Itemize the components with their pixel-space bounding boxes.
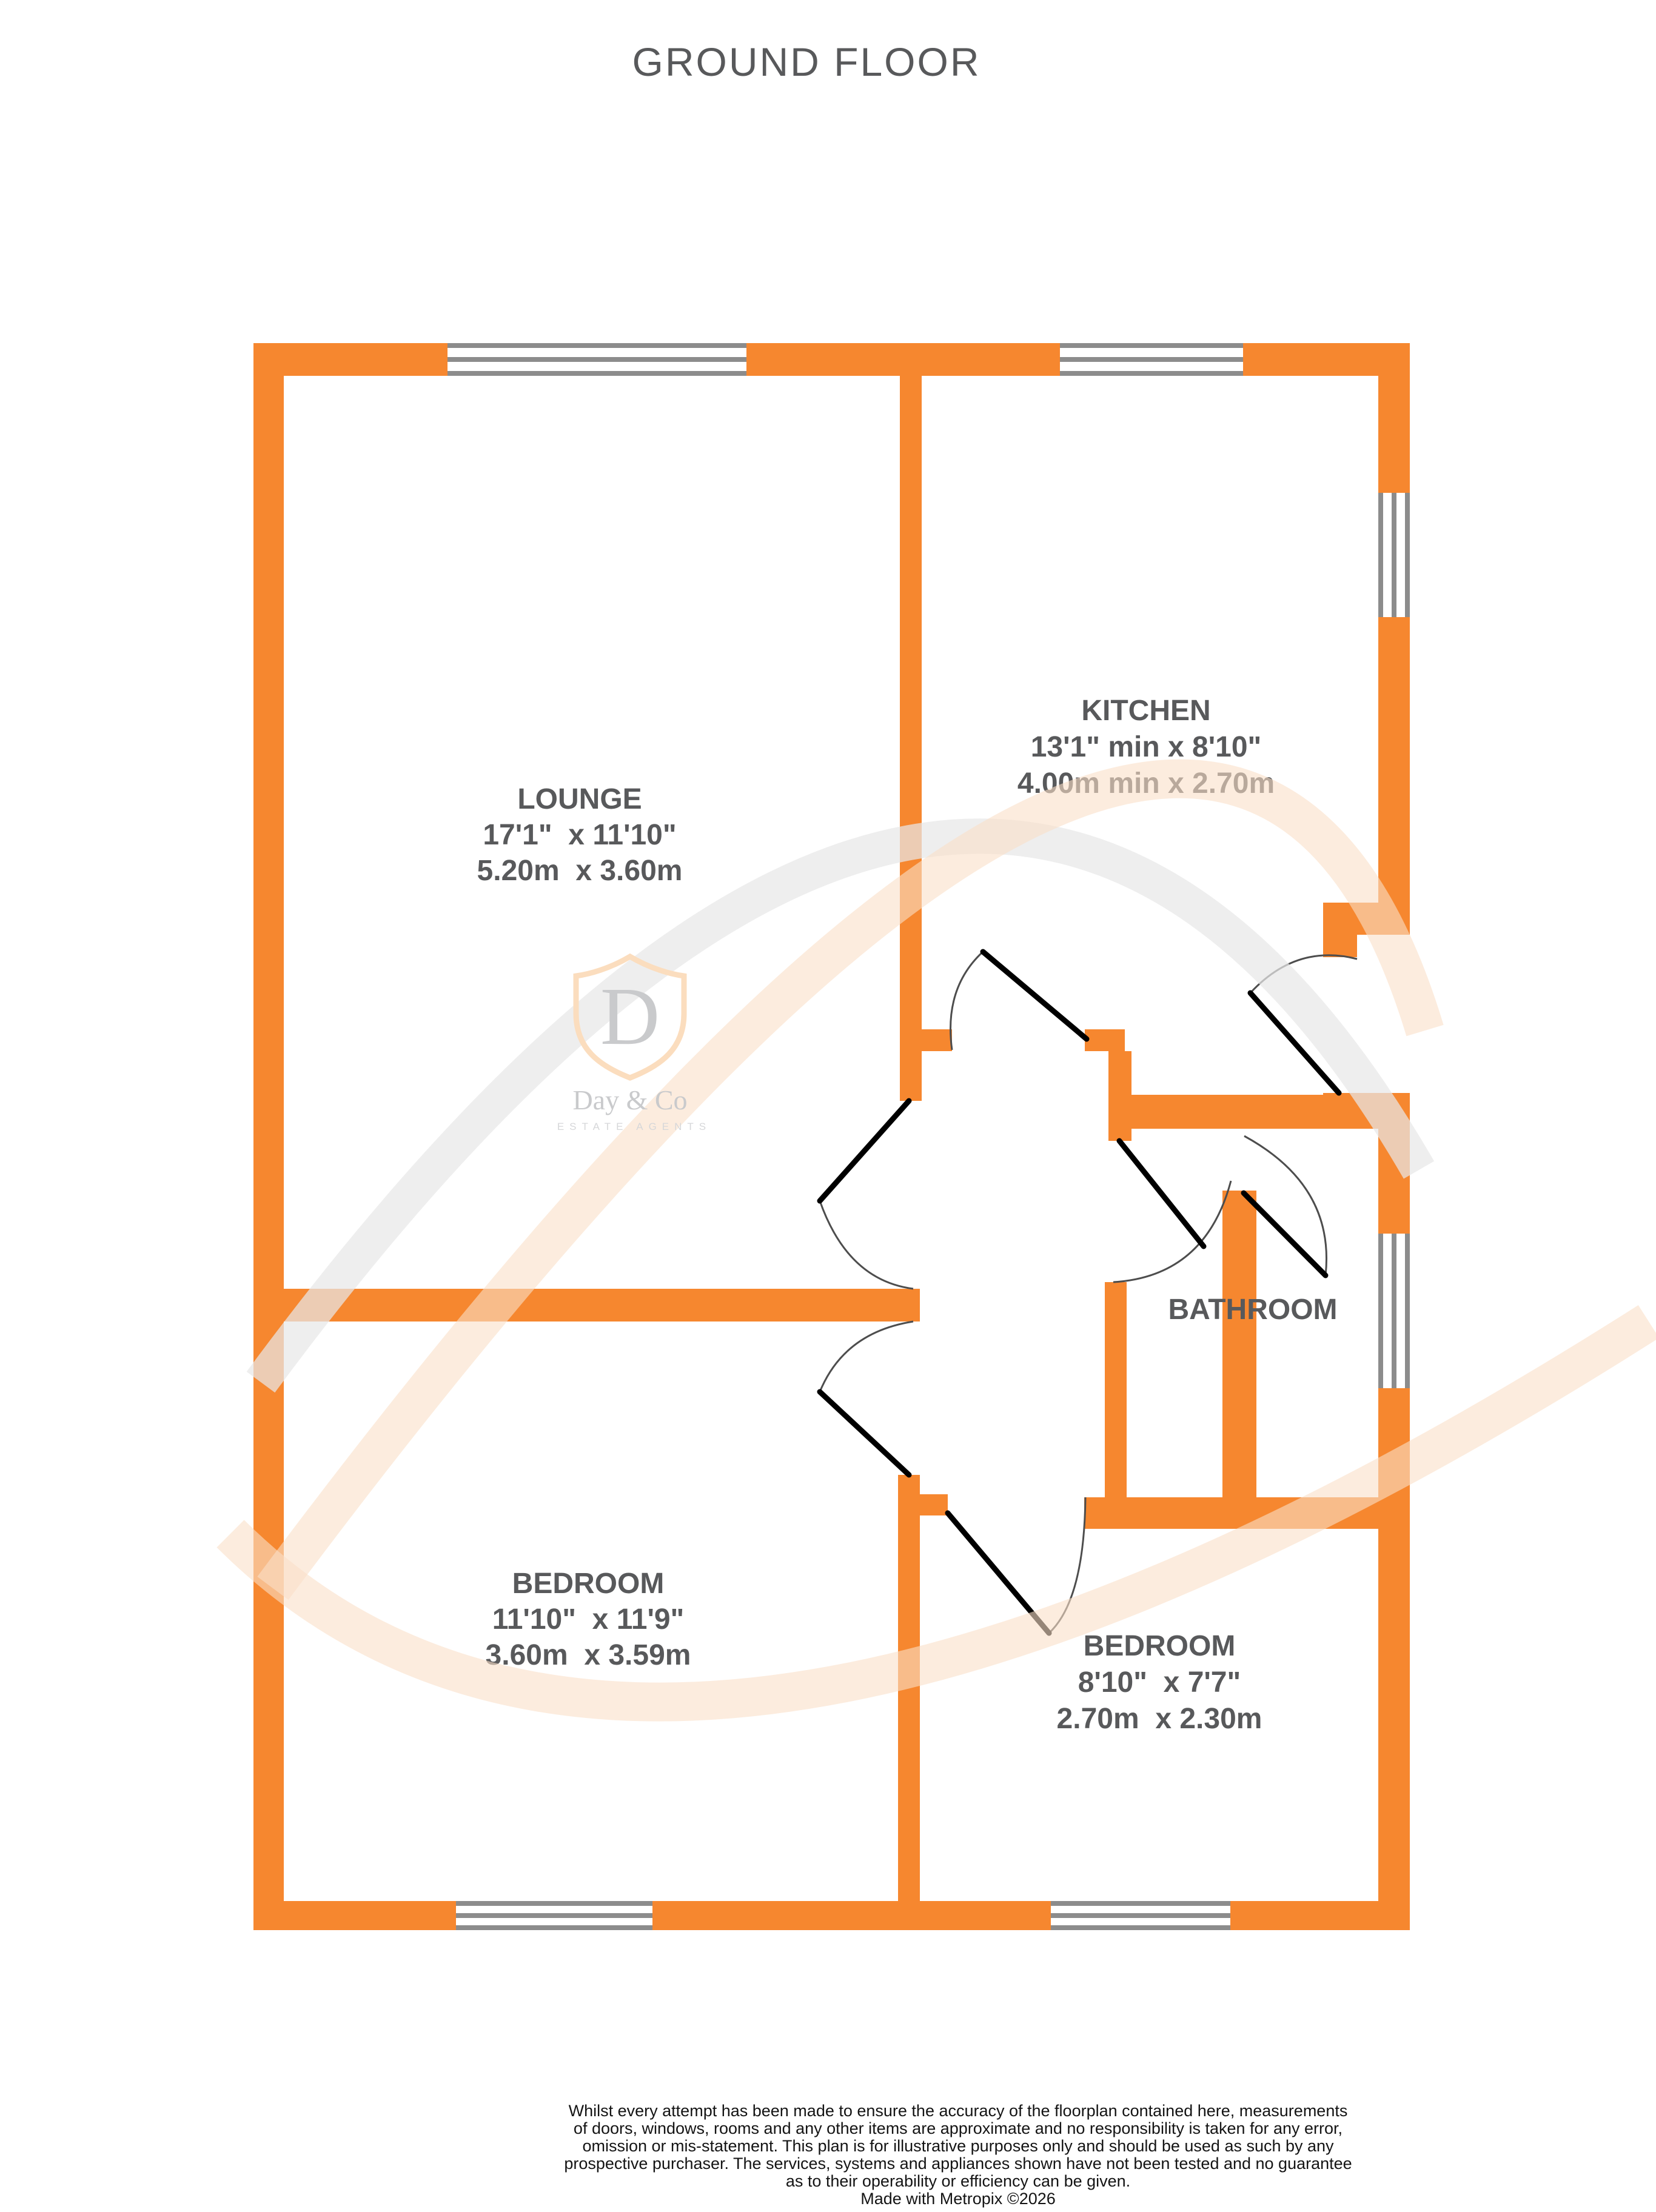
bedroom1-label: BEDROOM 11'10" x 11'9" 3.60m x 3.59m (486, 1568, 691, 1671)
kitchen-side-window (1378, 493, 1410, 617)
bedroom2-name: BEDROOM (1084, 1630, 1236, 1662)
floor-plan: LOUNGE 17'1" x 11'10" 5.20m x 3.60m KITC… (0, 0, 1656, 2212)
kitchen-door (951, 952, 1087, 1050)
lounge-label: LOUNGE 17'1" x 11'10" 5.20m x 3.60m (477, 783, 683, 887)
bedroom1-rear-window (456, 1901, 652, 1930)
disclaimer-line: omission or mis-statement. This plan is … (261, 2137, 1655, 2155)
bedroom2-metric: 2.70m x 2.30m (1057, 1703, 1262, 1735)
wall-kitchen-south-stub (922, 1029, 952, 1051)
bedroom1-metric: 3.60m x 3.59m (486, 1639, 691, 1671)
wall-lounge-bedroom1-divider (273, 1289, 920, 1322)
wall-bottom (253, 1901, 1410, 1930)
bedroom1-name: BEDROOM (512, 1568, 665, 1600)
bedroom2-imperial: 8'10" x 7'7" (1078, 1666, 1241, 1699)
watermark-name: Day & Co (572, 1084, 687, 1115)
bathroom-side-window (1378, 1234, 1410, 1388)
kitchen-front-window (1060, 343, 1243, 376)
lounge-imperial: 17'1" x 11'10" (483, 819, 676, 851)
lounge-front-window (448, 343, 746, 376)
disclaimer-credit: Made with Metropix ©2026 (261, 2190, 1655, 2208)
watermark: D Day & Co ESTATE AGENTS (230, 779, 1649, 1702)
kitchen-imperial: 13'1" min x 8'10" (1031, 731, 1262, 763)
disclaimer: Whilst every attempt has been made to en… (261, 2102, 1655, 2208)
disclaimer-line: prospective purchaser. The services, sys… (261, 2155, 1655, 2173)
wall-right-upper (1378, 343, 1410, 935)
bedroom2-label: BEDROOM 8'10" x 7'7" 2.70m x 2.30m (1057, 1630, 1262, 1735)
wall-bathroom-left (1222, 1191, 1256, 1497)
lounge-metric: 5.20m x 3.60m (477, 855, 683, 887)
wall-lounge-kitchen-divider (900, 376, 922, 1101)
lounge-door (820, 1101, 913, 1289)
watermark-tagline: ESTATE AGENTS (557, 1121, 711, 1132)
watermark-initial: D (600, 971, 660, 1062)
wall-bedroom2-door-arm (920, 1494, 948, 1515)
wall-kitchen-door-post (1085, 1029, 1125, 1051)
bathroom-outer-door (1113, 1141, 1231, 1282)
wall-left (253, 343, 284, 1930)
disclaimer-line: as to their operability or efficiency ca… (261, 2173, 1655, 2190)
bedroom1-imperial: 11'10" x 11'9" (492, 1603, 685, 1636)
kitchen-name: KITCHEN (1081, 695, 1210, 727)
disclaimer-line: of doors, windows, rooms and any other i… (261, 2120, 1655, 2137)
bathroom-name: BATHROOM (1168, 1294, 1337, 1326)
bedroom2-rear-window (1051, 1901, 1230, 1930)
wall-hall-east-lower (1105, 1282, 1127, 1497)
wall-entrance-jamb (1323, 935, 1357, 957)
bathroom-label: BATHROOM (1168, 1294, 1337, 1326)
lounge-name: LOUNGE (517, 783, 642, 815)
disclaimer-line: Whilst every attempt has been made to en… (261, 2102, 1655, 2120)
bedroom1-door (820, 1322, 913, 1475)
